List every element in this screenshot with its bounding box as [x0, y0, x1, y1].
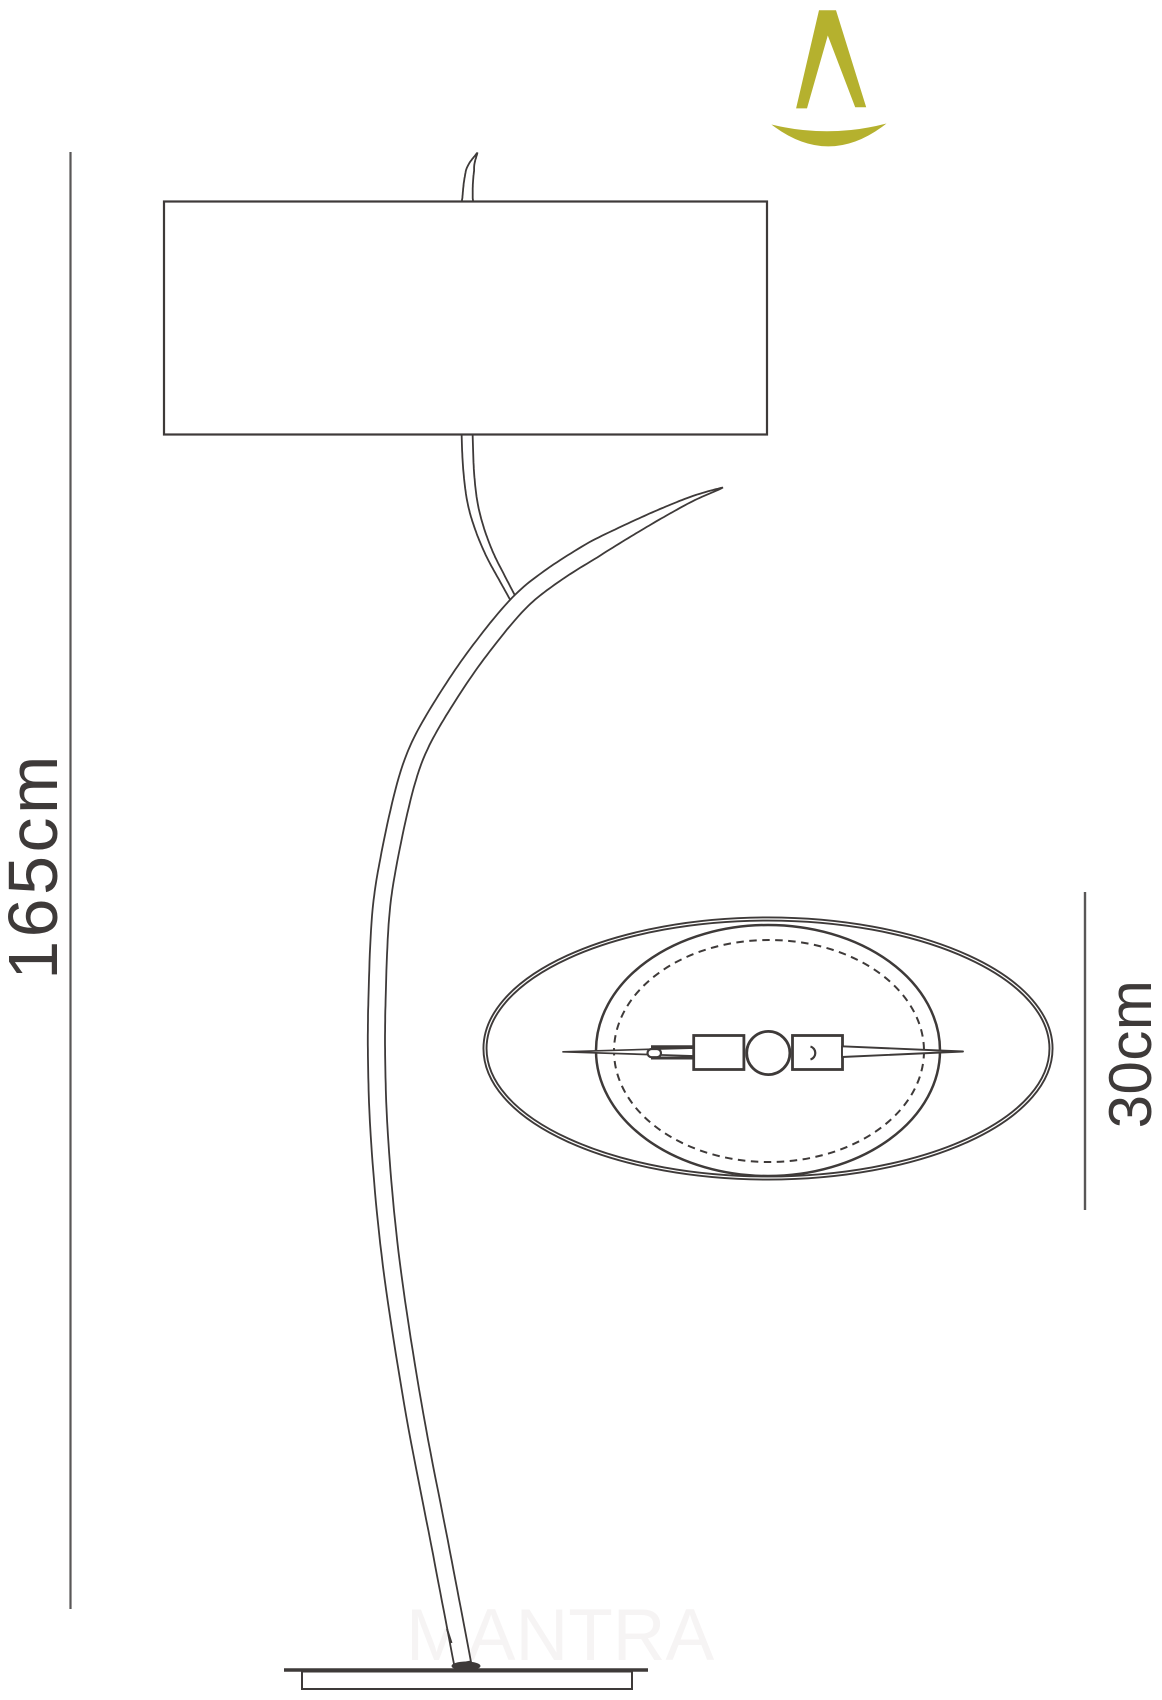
- svg-text:165cm: 165cm: [0, 752, 72, 980]
- svg-text:30cm: 30cm: [1097, 980, 1162, 1129]
